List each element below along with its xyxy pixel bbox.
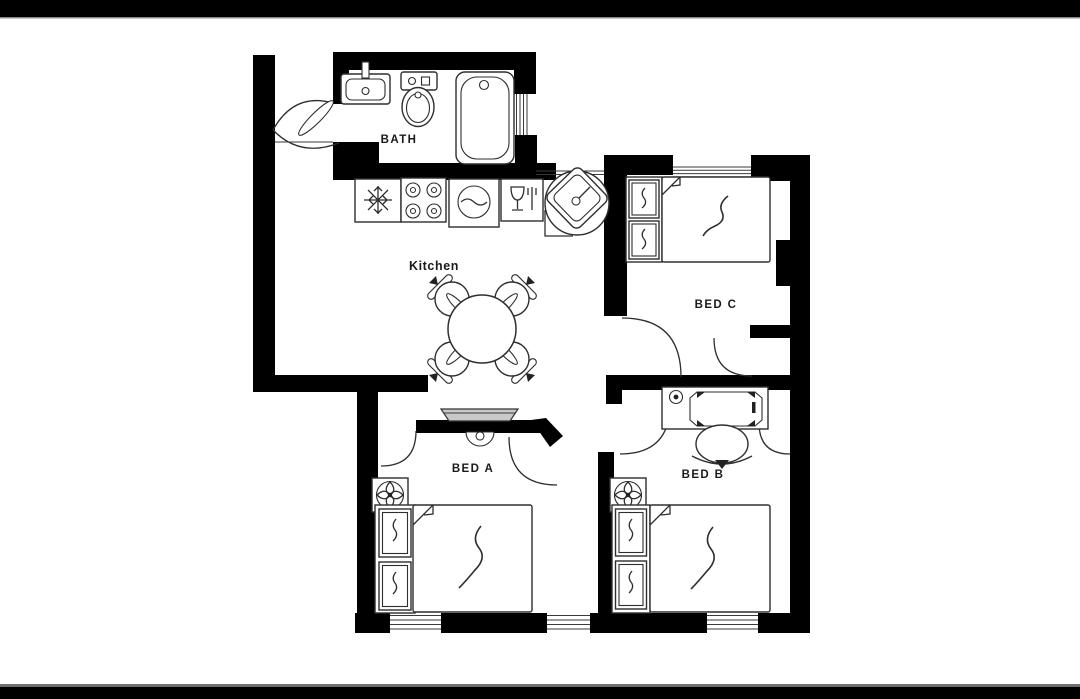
wall-beda-top (416, 420, 540, 433)
letterbox-bottom (0, 684, 1080, 699)
window-icon (547, 616, 590, 630)
stove-burners-icon (401, 178, 446, 222)
double-bed-icon (662, 177, 770, 262)
desk-icon (662, 387, 768, 429)
wall-bottom-1 (355, 613, 390, 633)
room-label-kitchen: Kitchen (409, 259, 459, 273)
window-icon (517, 94, 528, 135)
toilet-icon (401, 72, 437, 127)
double-bed-icon (650, 505, 770, 612)
wall-bath-bottom (360, 163, 556, 180)
bedroom-c: BED C (626, 177, 770, 311)
wall-left (253, 55, 275, 392)
wall-bottom-4 (758, 613, 810, 633)
dining-set (426, 273, 538, 385)
screenshot-stage: BATH (0, 0, 1080, 699)
room-label-bath: BATH (381, 134, 418, 146)
wall-bath-right-top (514, 70, 536, 94)
freezer-snowflake-icon (355, 179, 401, 222)
bathtub-icon (456, 72, 514, 164)
wall-bottom-2 (441, 613, 547, 633)
wall-bedc-closet-stub (750, 325, 792, 338)
wall-right-notch (776, 240, 792, 286)
window-icon (390, 616, 441, 630)
wall-bedc-top-left (627, 155, 673, 175)
wall-bottom-3 (590, 613, 707, 633)
wall-kitchen-bedc-divider (604, 155, 627, 316)
pillow-icon (375, 505, 415, 613)
dining-table-icon (448, 295, 516, 363)
entry-bath-door-swing-icon (273, 97, 339, 148)
bedroom-b: BED B (610, 387, 770, 613)
pillow-icon (626, 177, 662, 262)
wall-right (790, 163, 810, 633)
wall-hall-stub (606, 390, 622, 404)
room-label-bed-b: BED B (682, 469, 725, 481)
double-bed-icon (413, 505, 532, 612)
washing-machine-icon (449, 179, 499, 227)
wine-glass-fork-icon (501, 179, 543, 221)
pillow-icon (612, 505, 650, 613)
window-icon (707, 616, 758, 630)
bedc-closet-door-swing-icon (714, 338, 752, 376)
bedroom-a: BED A (372, 463, 532, 613)
window-icon (673, 167, 751, 177)
laptop-icon (690, 392, 762, 426)
beda-door-swing-icon (381, 431, 416, 466)
floor-plan: BATH (0, 0, 1080, 699)
room-label-bed-c: BED C (695, 299, 738, 311)
letterbox-top (0, 0, 1080, 19)
desk-chair-icon (692, 425, 752, 469)
room-label-bed-a: BED A (452, 463, 494, 475)
bedc-door-swing-icon (622, 318, 681, 377)
wall-kitchen-south (253, 375, 428, 392)
